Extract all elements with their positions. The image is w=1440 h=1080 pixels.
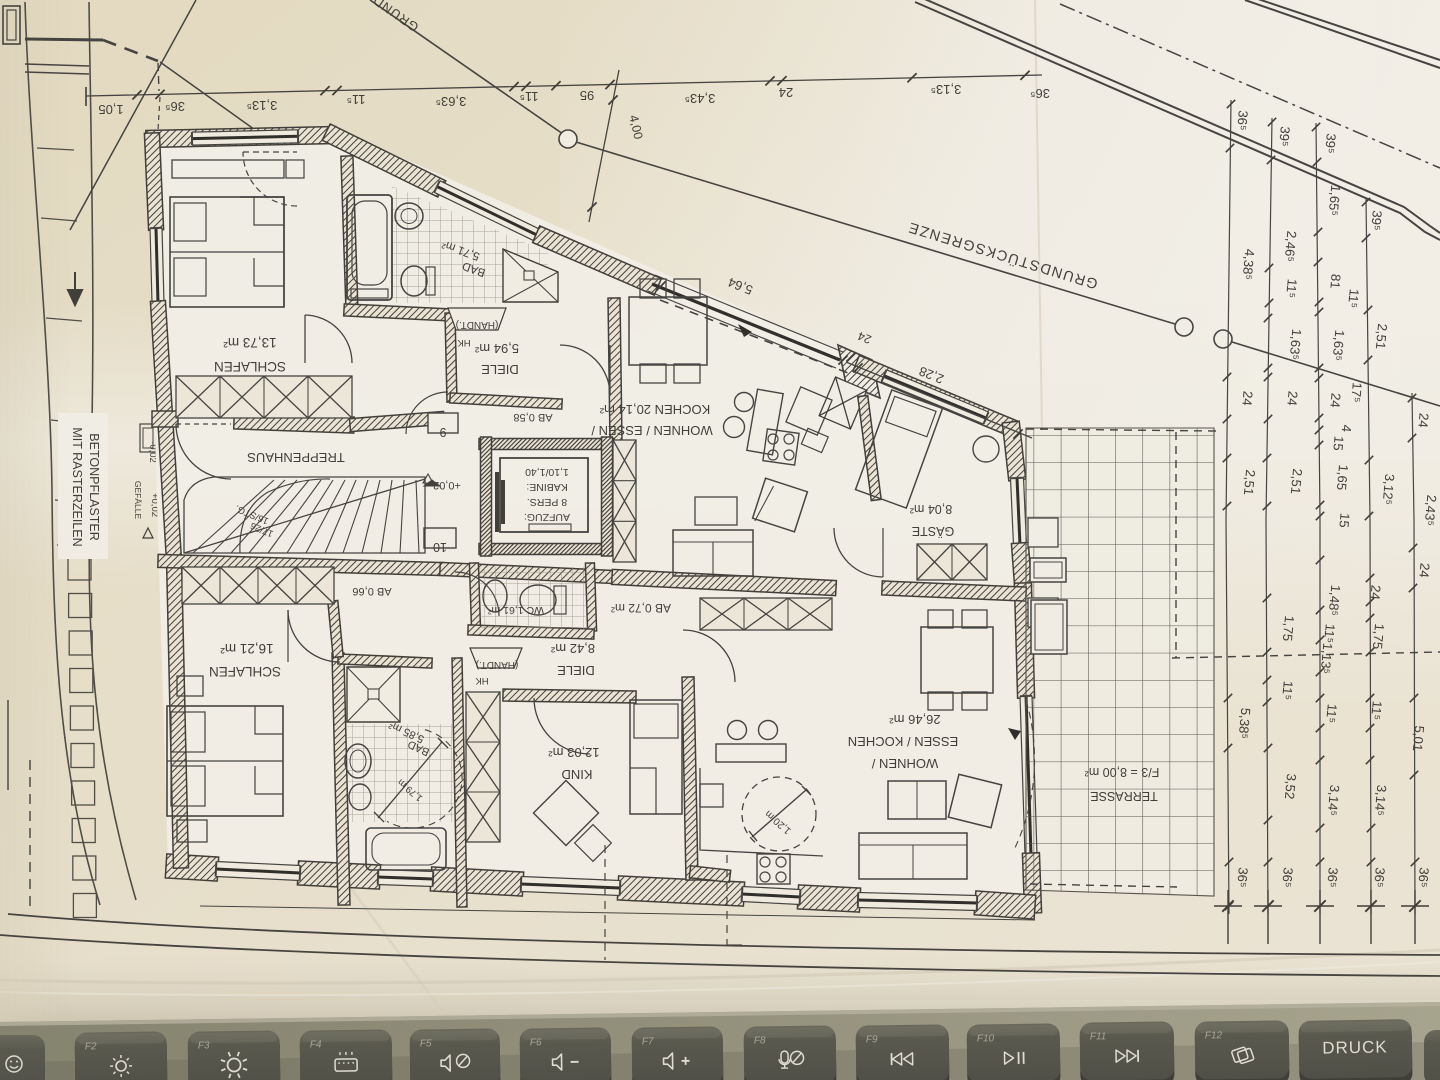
svg-text:3,43⁵: 3,43⁵ xyxy=(685,91,716,106)
svg-text:1,63⁵: 1,63⁵ xyxy=(1287,328,1305,360)
svg-text:36⁵: 36⁵ xyxy=(1415,867,1432,888)
svg-text:24: 24 xyxy=(1239,390,1255,406)
svg-text:F4: F4 xyxy=(310,1039,322,1050)
svg-text:11⁵: 11⁵ xyxy=(347,92,366,107)
svg-text:13,73 m²: 13,73 m² xyxy=(223,335,277,350)
svg-text:3,63⁵: 3,63⁵ xyxy=(436,94,467,109)
svg-text:1,65: 1,65 xyxy=(1334,464,1351,491)
svg-text:F6: F6 xyxy=(530,1037,542,1048)
svg-text:1,10/1,40: 1,10/1,40 xyxy=(525,466,569,478)
svg-text:36⁵: 36⁵ xyxy=(1324,867,1341,888)
svg-text:GEFÄLLE: GEFÄLLE xyxy=(133,481,143,520)
svg-text:1,75: 1,75 xyxy=(1280,615,1297,642)
svg-text:AB 0,66: AB 0,66 xyxy=(352,585,391,597)
svg-text:15: 15 xyxy=(1330,435,1346,451)
svg-text:11⁵: 11⁵ xyxy=(1368,700,1385,720)
svg-text:36⁵: 36⁵ xyxy=(1279,867,1296,888)
svg-text:1,63⁵: 1,63⁵ xyxy=(1330,329,1348,361)
svg-text:F9: F9 xyxy=(866,1034,878,1045)
svg-text:16,21 m²: 16,21 m² xyxy=(220,641,274,656)
svg-text:24: 24 xyxy=(1416,562,1432,578)
svg-text:2,43⁵: 2,43⁵ xyxy=(1422,494,1440,526)
svg-text:8,42 m²: 8,42 m² xyxy=(550,641,595,656)
svg-text:11⁵: 11⁵ xyxy=(1283,278,1300,298)
svg-text:F3: F3 xyxy=(198,1040,210,1051)
svg-text:WOHNEN /: WOHNEN / xyxy=(871,756,938,771)
svg-text:(HANDT.): (HANDT.) xyxy=(476,659,519,670)
svg-text:AB 0,58: AB 0,58 xyxy=(513,411,552,423)
svg-text:MIT RASTERZEILEN: MIT RASTERZEILEN xyxy=(70,427,84,546)
svg-text:39⁵: 39⁵ xyxy=(1276,126,1293,147)
svg-text:HK: HK xyxy=(475,675,489,686)
svg-text:F5: F5 xyxy=(420,1038,432,1049)
svg-text:3,14⁵: 3,14⁵ xyxy=(1325,784,1343,816)
svg-text:TREPPENHAUS: TREPPENHAUS xyxy=(247,450,345,465)
svg-text:11⁵: 11⁵ xyxy=(1323,703,1340,723)
svg-text:KOCHEN 20,14 m²: KOCHEN 20,14 m² xyxy=(599,402,710,417)
svg-text:F10: F10 xyxy=(977,1033,995,1044)
svg-text:5,01: 5,01 xyxy=(1410,725,1427,752)
svg-text:36⁵: 36⁵ xyxy=(1030,86,1050,101)
svg-text:3,13⁵: 3,13⁵ xyxy=(247,98,278,113)
svg-text:36⁵: 36⁵ xyxy=(1371,867,1388,888)
svg-text:3,52: 3,52 xyxy=(1282,773,1299,800)
svg-text:2,51: 2,51 xyxy=(1288,468,1305,495)
svg-text:AUFZUG:: AUFZUG: xyxy=(524,511,570,523)
svg-text:17⁵: 17⁵ xyxy=(1348,382,1365,403)
svg-text:KABINE:: KABINE: xyxy=(526,481,567,493)
svg-text:4: 4 xyxy=(1339,424,1355,433)
svg-text:SCHLAFEN: SCHLAFEN xyxy=(209,664,281,679)
svg-text:36⁵: 36⁵ xyxy=(1234,867,1251,888)
svg-text:DIELE: DIELE xyxy=(557,663,595,678)
svg-text:9: 9 xyxy=(439,425,446,439)
svg-text:10: 10 xyxy=(433,540,447,554)
svg-text:11⁵: 11⁵ xyxy=(520,89,539,104)
svg-text:95: 95 xyxy=(580,88,594,103)
svg-text:11⁵: 11⁵ xyxy=(1321,623,1338,643)
svg-text:DRUCK: DRUCK xyxy=(1322,1037,1388,1057)
svg-text:BETONPFLASTER: BETONPFLASTER xyxy=(87,433,101,540)
svg-text:1,75: 1,75 xyxy=(1370,623,1387,650)
svg-text:24: 24 xyxy=(779,85,793,100)
svg-text:F12: F12 xyxy=(1205,1030,1223,1041)
svg-text:8,04 m²: 8,04 m² xyxy=(910,502,952,516)
svg-text:F11: F11 xyxy=(1090,1031,1107,1042)
svg-text:SCHLAFEN: SCHLAFEN xyxy=(214,359,286,374)
svg-text:12,03 m²: 12,03 m² xyxy=(548,745,600,760)
svg-text:DIELE: DIELE xyxy=(481,362,519,377)
svg-text:AB 0,72 m²: AB 0,72 m² xyxy=(611,601,671,615)
svg-text:24: 24 xyxy=(1367,584,1383,600)
svg-text:2,51: 2,51 xyxy=(1373,323,1390,350)
svg-text:2,51: 2,51 xyxy=(1241,469,1258,496)
svg-text:1,48⁵: 1,48⁵ xyxy=(1326,584,1344,616)
svg-text:HK: HK xyxy=(457,337,471,348)
svg-text:24: 24 xyxy=(1415,412,1431,428)
svg-text:24: 24 xyxy=(1327,392,1343,408)
svg-text:1,65⁵: 1,65⁵ xyxy=(1326,184,1344,216)
svg-text:2,46⁵: 2,46⁵ xyxy=(1282,230,1300,262)
svg-text:5,38⁵: 5,38⁵ xyxy=(1236,707,1254,739)
svg-text:WOHNEN / ESSEN /: WOHNEN / ESSEN / xyxy=(591,423,713,438)
svg-text:36⁵: 36⁵ xyxy=(1234,110,1251,131)
svg-text:WC 1,61 m²: WC 1,61 m² xyxy=(487,604,544,616)
svg-text:F2: F2 xyxy=(85,1041,97,1052)
svg-text:26,46 m²: 26,46 m² xyxy=(889,712,941,727)
svg-text:24: 24 xyxy=(1284,390,1300,406)
svg-text:3,14⁵: 3,14⁵ xyxy=(1372,784,1390,816)
svg-text:15: 15 xyxy=(1336,512,1352,528)
svg-text:F/3 = 8,00 m²: F/3 = 8,00 m² xyxy=(1085,765,1160,779)
svg-text:3,12⁵: 3,12⁵ xyxy=(1380,473,1398,505)
svg-text:ESSEN / KOCHEN: ESSEN / KOCHEN xyxy=(848,734,959,749)
svg-text:8 PERS.: 8 PERS. xyxy=(527,496,567,508)
svg-text:F7: F7 xyxy=(642,1036,654,1047)
svg-text:5,94 m²: 5,94 m² xyxy=(474,341,519,356)
svg-text:1,13⁵: 1,13⁵ xyxy=(1318,642,1336,674)
svg-text:39⁵: 39⁵ xyxy=(1322,133,1339,154)
svg-text:4,38⁵: 4,38⁵ xyxy=(1240,248,1258,280)
svg-text:81: 81 xyxy=(1327,273,1343,289)
svg-text:36⁵: 36⁵ xyxy=(165,99,185,114)
svg-text:F8: F8 xyxy=(754,1035,766,1046)
svg-text:(HANDT.): (HANDT.) xyxy=(456,319,499,330)
svg-text:1,05: 1,05 xyxy=(98,102,123,117)
svg-text:39⁵: 39⁵ xyxy=(1368,210,1385,231)
svg-text:11⁵: 11⁵ xyxy=(1279,680,1296,700)
svg-text:11⁵: 11⁵ xyxy=(1345,288,1362,308)
svg-text:TERRASSE: TERRASSE xyxy=(1090,789,1157,803)
svg-text:GÄSTE: GÄSTE xyxy=(912,524,954,538)
svg-text:3,13⁵: 3,13⁵ xyxy=(931,82,962,97)
